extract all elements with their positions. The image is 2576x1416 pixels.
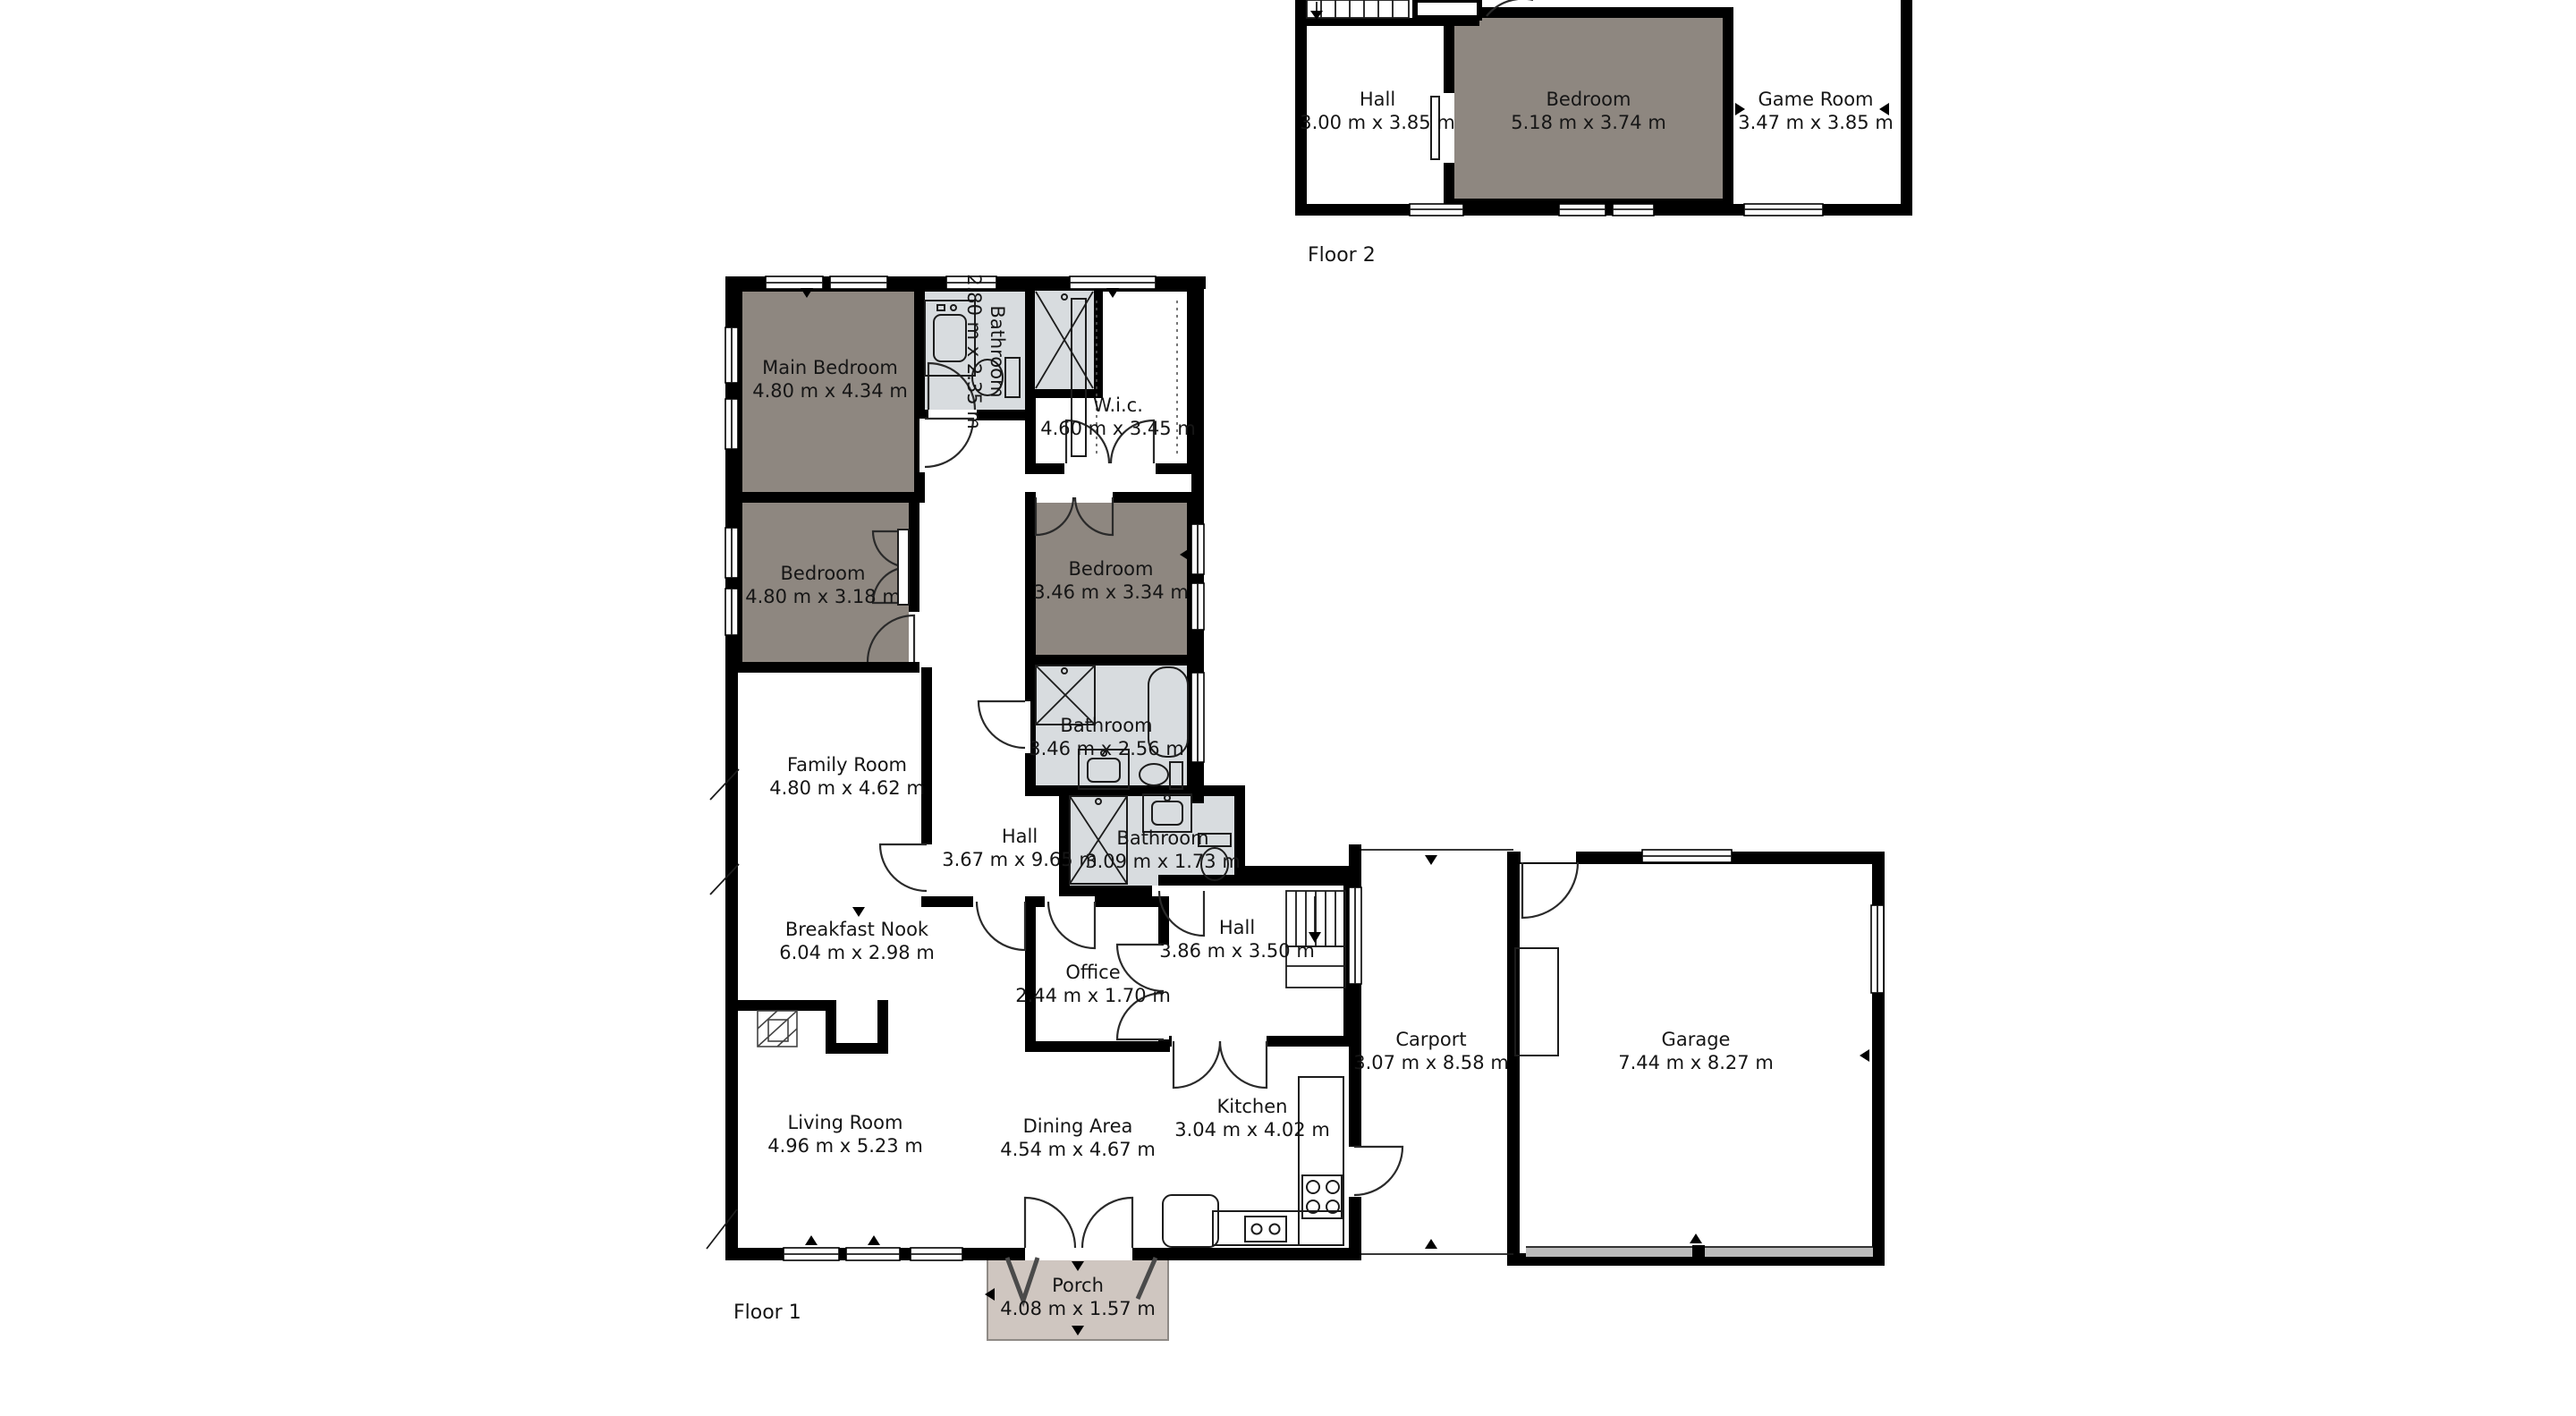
room-label-kitchen: Kitchen3.04 m x 4.02 m [1174,1096,1330,1140]
svg-text:Carport3.07 m x 8.58 m: Carport3.07 m x 8.58 m [1353,1029,1509,1073]
closet-floor2 [1415,0,1479,18]
room-label-carport: Carport3.07 m x 8.58 m [1353,1029,1509,1073]
svg-text:Kitchen3.04 m x 4.02 m: Kitchen3.04 m x 4.02 m [1174,1096,1330,1140]
floor1-label: Floor 1 [733,1302,801,1324]
svg-text:Living Room4.96 m x 5.23 m: Living Room4.96 m x 5.23 m [767,1112,923,1157]
svg-text:Dining Area4.54 m x 4.67 m: Dining Area4.54 m x 4.67 m [1000,1115,1156,1160]
svg-text:Game Room3.47 m x 3.85 m: Game Room3.47 m x 3.85 m [1738,89,1894,133]
room-label-living-room: Living Room4.96 m x 5.23 m [767,1112,923,1157]
floor2-label: Floor 2 [1308,244,1376,267]
room-label-breakfast-nook: Breakfast Nook6.04 m x 2.98 m [779,919,935,963]
floorplan-canvas: Hall3.00 m x 3.85 m Bedroom5.18 m x 3.74… [0,0,2576,1416]
svg-text:Family Room4.80 m x 4.62 m: Family Room4.80 m x 4.62 m [769,754,925,799]
floor1-plan: Main Bedroom4.80 m x 4.34 m Bathroom2.80… [707,274,1884,1340]
room-label-family-room: Family Room4.80 m x 4.62 m [769,754,925,799]
floor2-plan: Hall3.00 m x 3.85 m Bedroom5.18 m x 3.74… [1295,0,1912,267]
fireplace [758,1011,797,1047]
svg-text:Breakfast Nook6.04 m x 2.98 m: Breakfast Nook6.04 m x 2.98 m [779,919,935,963]
room-label-dining-area: Dining Area4.54 m x 4.67 m [1000,1115,1156,1160]
staircase-floor2 [1307,0,1409,20]
kitchen-sink [1245,1217,1286,1242]
room-label-floor2-game-room: Game Room3.47 m x 3.85 m [1738,89,1894,133]
